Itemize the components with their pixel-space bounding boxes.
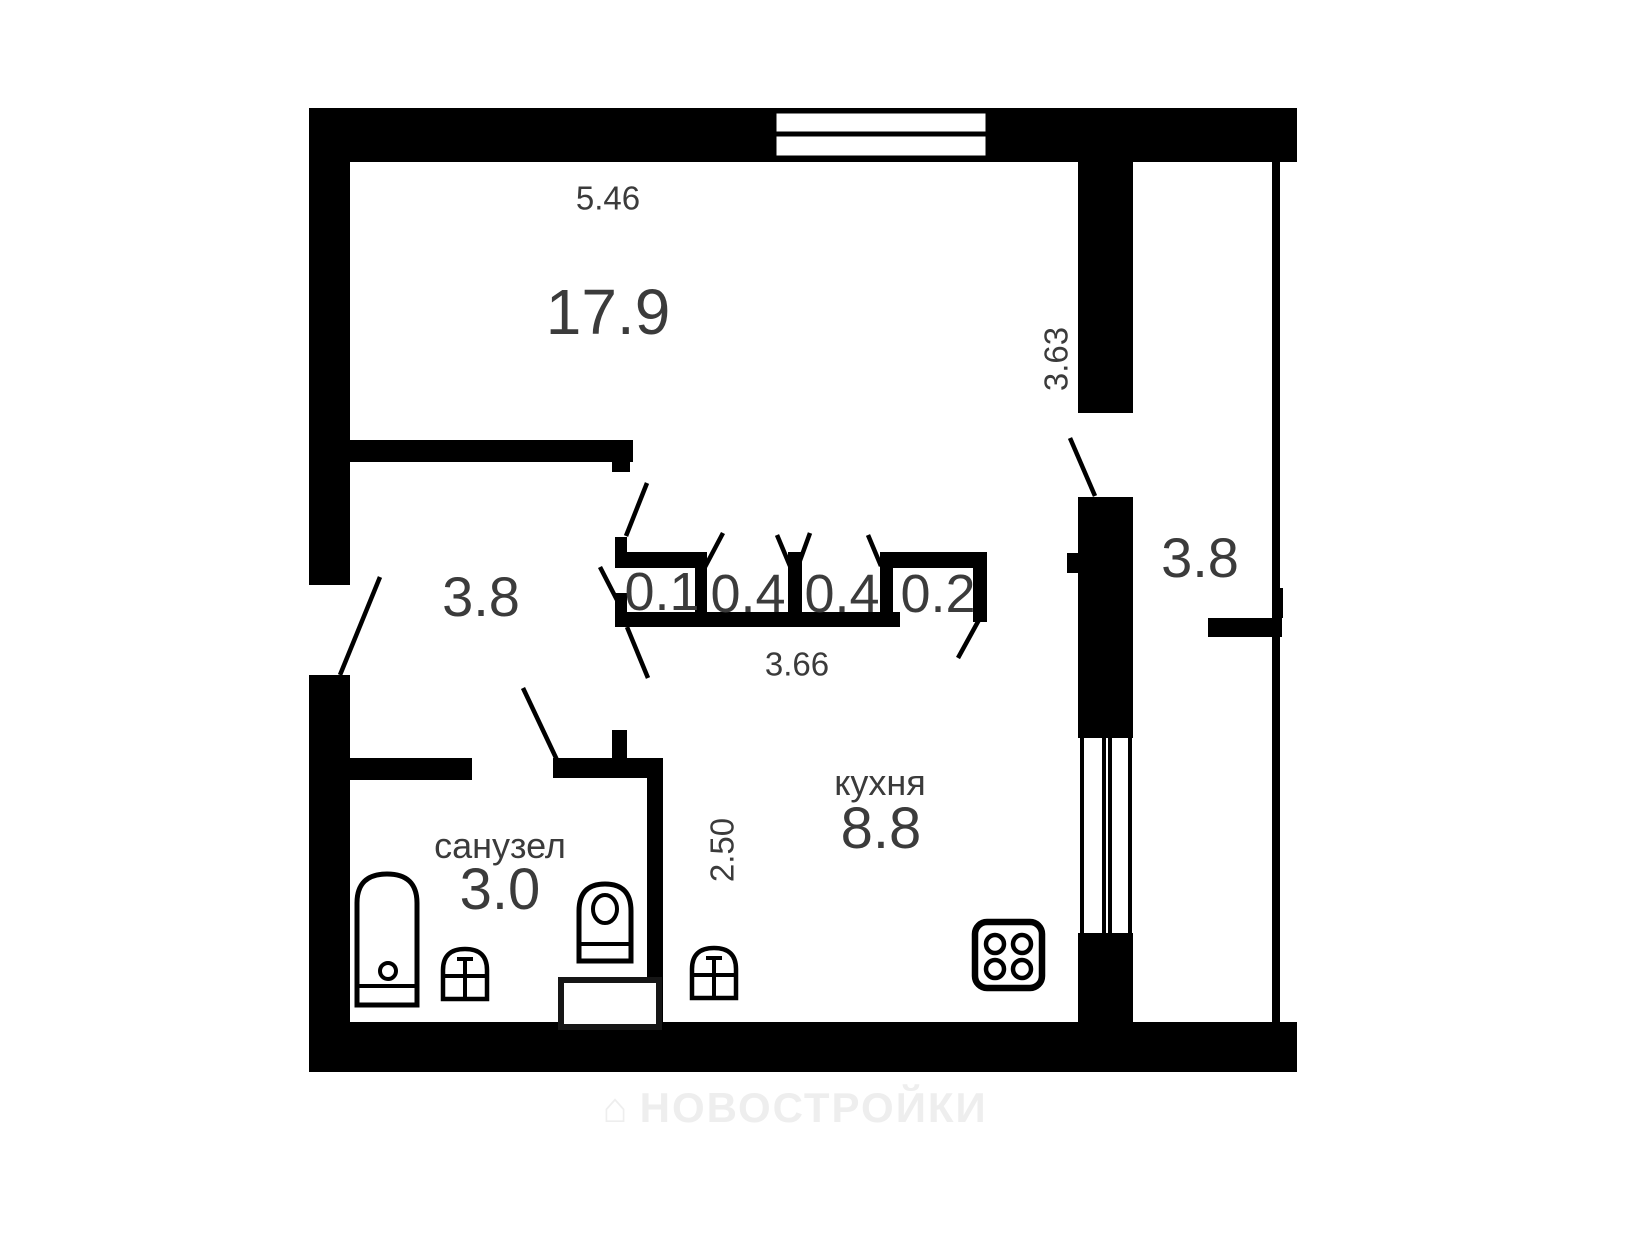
closet2-door-swing-b xyxy=(777,535,790,566)
room-label-kitchen: 8.8 xyxy=(841,800,922,858)
entry-door-swing xyxy=(340,577,380,675)
dim-kitchen-depth: 2.50 xyxy=(706,818,739,882)
room-label-living: 17.9 xyxy=(546,280,671,344)
bathtub-icon xyxy=(357,874,417,1005)
closet2-door-swing-a xyxy=(705,533,723,567)
dim-living-balcony-wall: 3.63 xyxy=(1040,327,1073,391)
window-top xyxy=(774,111,988,158)
closet4-door-swing xyxy=(958,618,980,658)
living-hall-door-swing xyxy=(626,483,647,536)
kitchen-sink-icon xyxy=(692,948,736,998)
room-label-hallway: 3.8 xyxy=(442,569,520,625)
room-label-balcony: 3.8 xyxy=(1161,530,1239,586)
floor-plan: 5.46 17.9 3.63 3.8 0.1 0.4 0.4 0.2 3.66 … xyxy=(0,0,1652,1240)
dim-closet-row: 3.66 xyxy=(765,648,829,681)
sink-icon xyxy=(443,949,487,999)
toilet-icon xyxy=(579,884,631,961)
room-label-bathroom: 3.0 xyxy=(460,861,541,919)
bathroom-door-swing xyxy=(523,688,557,760)
closet3-door-swing-a xyxy=(798,533,810,566)
closet3-door-swing-b xyxy=(868,535,881,566)
balcony-glazed-door xyxy=(1082,738,1130,933)
closet-label-1: 0.1 xyxy=(624,565,699,619)
hall-kitchen-door-swing xyxy=(627,627,648,678)
closet-label-4: 0.2 xyxy=(900,567,975,621)
dim-top-wall: 5.46 xyxy=(576,182,640,215)
washing-machine-icon xyxy=(561,980,659,1027)
closet-label-2: 0.4 xyxy=(710,567,785,621)
closet-label-3: 0.4 xyxy=(804,567,879,621)
closet1-door-swing xyxy=(600,567,617,600)
living-balcony-door-swing xyxy=(1070,438,1095,496)
stove-icon xyxy=(975,922,1042,988)
